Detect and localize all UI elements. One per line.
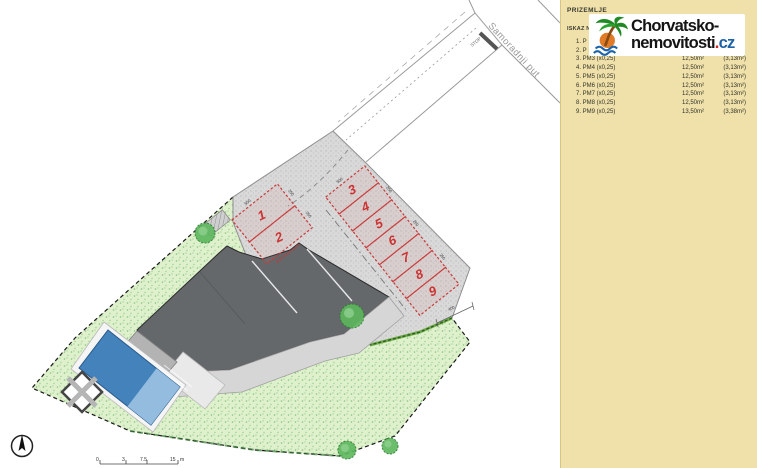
shed — [62, 372, 102, 412]
site-plan-screenshot: Samoradnji put STOP — [0, 0, 757, 468]
panel-title: PRIZEMLJE — [567, 7, 607, 14]
scale-tick-3: 3 — [122, 457, 125, 463]
list-item: 3. PM3 (x0,25)12,50m²(3,13m²) — [576, 55, 748, 64]
scale-bar: 0 3 7.5 15 m — [96, 457, 184, 464]
access-road: STOP — [333, 12, 502, 162]
palm-tree-icon — [592, 14, 628, 56]
list-item: 8. PM8 (x0,25)12,50m²(3,13m²) — [576, 99, 748, 108]
legend-panel: PRIZEMLJE ISKAZ NE 1. P 2. P 3. PM3 (x0,… — [560, 0, 757, 468]
list-item: 6. PM6 (x0,25)12,50m²(3,13m²) — [576, 82, 748, 91]
logo-text: Chorvatsko- nemovitosti.cz — [631, 18, 734, 52]
list-item: 4. PM4 (x0,25)12,50m²(3,13m²) — [576, 64, 748, 73]
scale-tick-15: 15 — [170, 457, 176, 463]
stop-label: STOP — [469, 36, 482, 48]
scale-tick-75: 7.5 — [140, 457, 147, 463]
road-label: Samoradnji put — [486, 21, 542, 80]
watermark-logo: Chorvatsko- nemovitosti.cz — [589, 14, 745, 56]
scale-unit: m — [180, 457, 184, 463]
logo-line1: Chorvatsko- — [631, 18, 734, 35]
site-plan-drawing: Samoradnji put STOP — [0, 0, 560, 468]
logo-line2: nemovitosti.cz — [631, 35, 734, 52]
tree-icon — [382, 438, 398, 454]
north-arrow-icon — [12, 435, 33, 457]
list-item: 9. PM9 (x0,25)13,50m²(3,38m²) — [576, 108, 748, 117]
tree-icon — [195, 223, 215, 243]
list-item: 7. PM7 (x0,25)12,50m²(3,13m²) — [576, 90, 748, 99]
tree-icon — [338, 441, 356, 459]
list-item: 5. PM5 (x0,25)12,50m²(3,13m²) — [576, 73, 748, 82]
public-road: Samoradnji put — [469, 0, 560, 103]
tree-icon — [340, 304, 364, 328]
scale-tick-0: 0 — [96, 457, 99, 463]
